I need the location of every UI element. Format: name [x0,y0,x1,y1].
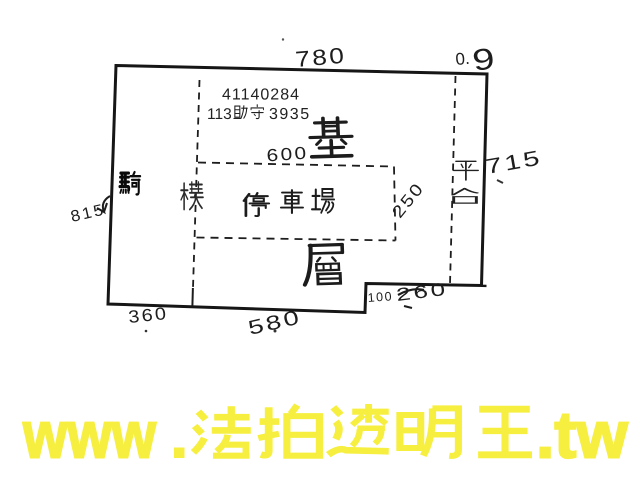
svg-text:715: 715 [484,146,544,179]
svg-text:3935: 3935 [269,106,311,123]
svg-text:360: 360 [127,303,169,327]
svg-text:600: 600 [266,143,309,166]
svg-text:41140284: 41140284 [222,87,300,104]
svg-text:100: 100 [367,289,393,305]
svg-text:580: 580 [246,306,304,340]
svg-text:0.: 0. [455,49,471,69]
svg-text:815: 815 [69,201,107,225]
svg-text:.tw: .tw [536,398,628,472]
svg-text:113: 113 [207,106,232,123]
svg-text:780: 780 [294,43,347,72]
svg-text:9: 9 [470,42,496,78]
svg-text:www: www [22,398,156,472]
